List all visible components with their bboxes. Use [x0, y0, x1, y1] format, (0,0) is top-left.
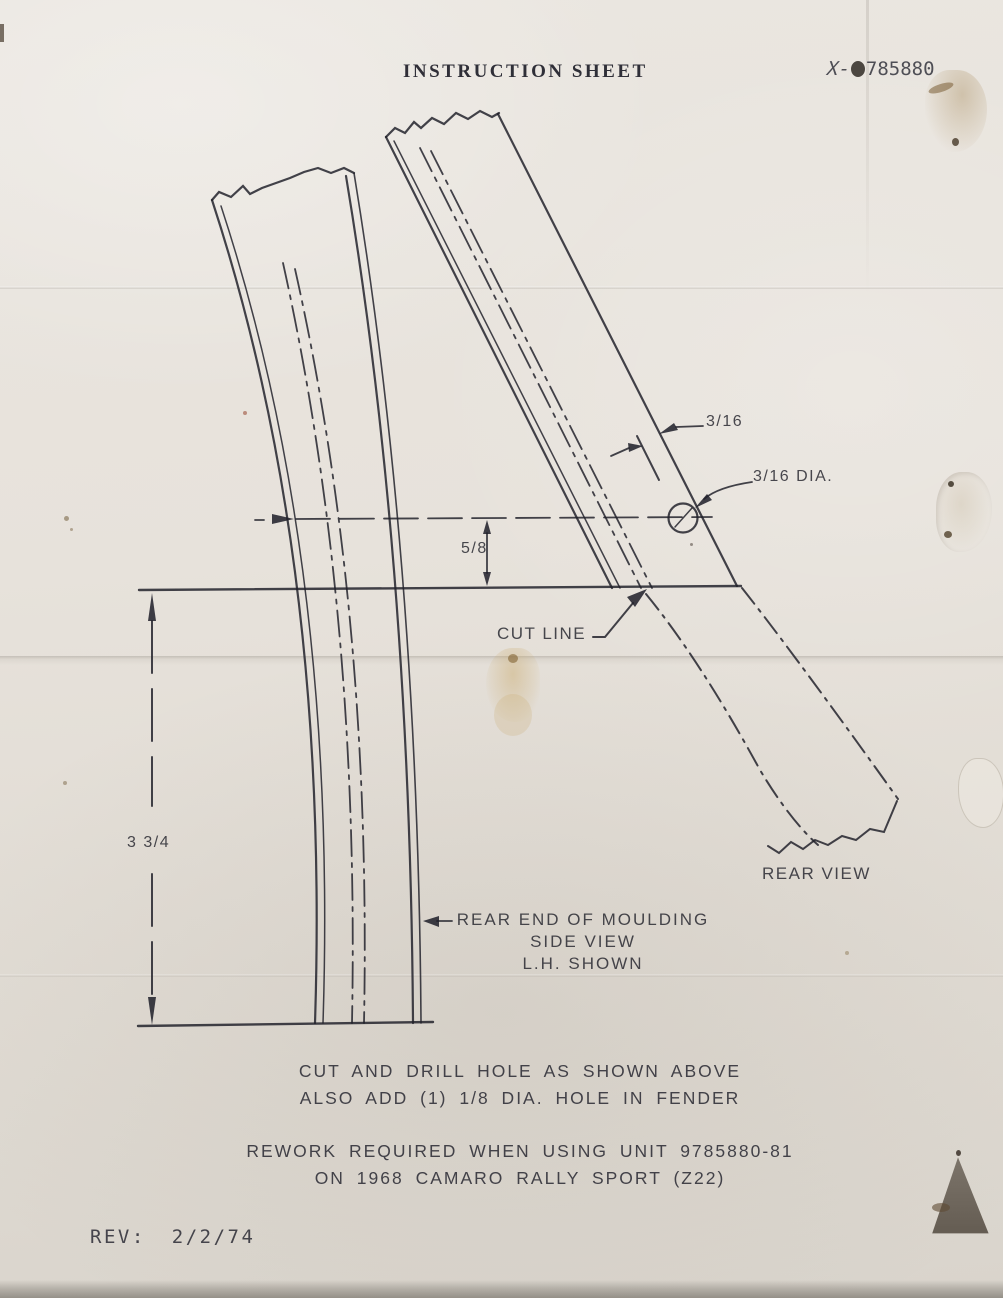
- part-number-digits: 785880: [866, 58, 935, 80]
- side-view-caption-line2: SIDE VIEW: [455, 931, 711, 953]
- part-number-smudged-digit: 9: [851, 61, 865, 77]
- rework-note-line1: REWORK REQUIRED WHEN USING UNIT 9785880-…: [200, 1138, 840, 1165]
- cut-away-portion: [646, 588, 898, 853]
- cut-line-leader: [593, 603, 633, 637]
- dim-334-label: 3 3/4: [127, 834, 170, 852]
- instruction-note: CUT AND DRILL HOLE AS SHOWN ABOVE ALSO A…: [220, 1058, 820, 1112]
- dim-316dia-label: 3/16 DIA.: [753, 468, 833, 486]
- cut-line-label: CUT LINE: [497, 624, 586, 644]
- dim-316-label: 3/16: [706, 413, 743, 431]
- instruction-note-line2: ALSO ADD (1) 1/8 DIA. HOLE IN FENDER: [220, 1085, 820, 1112]
- dim-316-arrow-outer: [659, 423, 678, 434]
- side-view-caption: REAR END OF MOULDING SIDE VIEW L.H. SHOW…: [455, 909, 711, 975]
- revision-line: REV:2/2/74: [90, 1226, 255, 1248]
- dim-58-arrow-down: [483, 572, 491, 586]
- bottom-reference-line: [138, 1022, 433, 1026]
- side-view-caption-line1: REAR END OF MOULDING: [455, 909, 711, 931]
- revision-label: REV:: [90, 1226, 146, 1248]
- fender-line: [139, 586, 741, 590]
- dim-58-arrow-up: [483, 520, 491, 534]
- dim-hole-leader: [704, 482, 752, 499]
- revision-date: 2/2/74: [172, 1226, 256, 1248]
- cut-line-arrow: [627, 589, 647, 607]
- dim-334-arrow-up: [148, 593, 156, 621]
- side-view-caption-line3: L.H. SHOWN: [455, 953, 711, 975]
- rework-note: REWORK REQUIRED WHEN USING UNIT 9785880-…: [200, 1138, 840, 1192]
- dim-58-label: 5/8: [461, 540, 488, 558]
- centerline-arrow: [272, 514, 294, 524]
- hole-centerline: [255, 517, 712, 520]
- instruction-sheet-scan: INSTRUCTION SHEET X-9785880 3/16 3/16 DI…: [0, 0, 1003, 1298]
- rework-note-line2: ON 1968 CAMARO RALLY SPORT (Z22): [200, 1165, 840, 1192]
- side-view-arrow: [423, 916, 439, 927]
- dim-edge-offset-lines: [611, 426, 703, 480]
- part-number: X-9785880: [827, 58, 935, 80]
- instruction-note-line1: CUT AND DRILL HOLE AS SHOWN ABOVE: [220, 1058, 820, 1085]
- side-view-moulding: [212, 168, 421, 1023]
- rear-view-label: REAR VIEW: [762, 864, 871, 884]
- page-title: INSTRUCTION SHEET: [403, 61, 648, 83]
- dim-334-arrow-down: [148, 997, 156, 1025]
- part-number-prefix: X-: [824, 58, 852, 80]
